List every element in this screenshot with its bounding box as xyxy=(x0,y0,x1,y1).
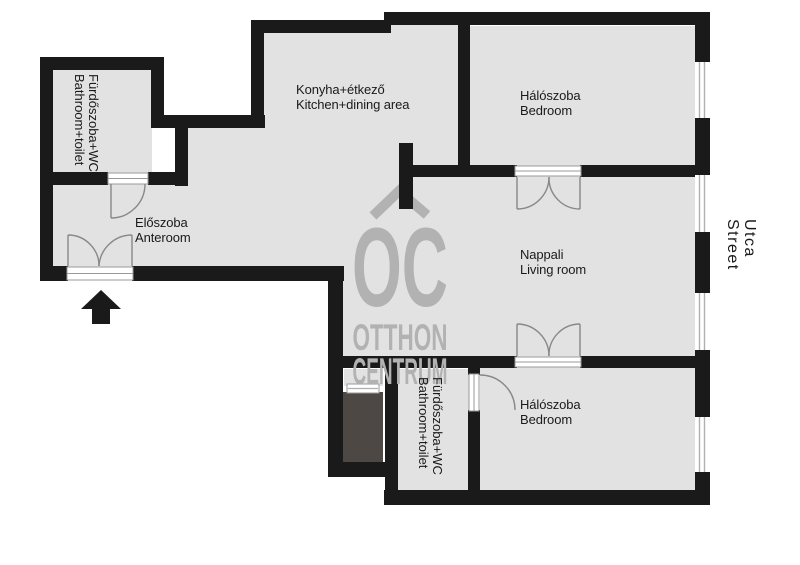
anteroom-floor xyxy=(52,184,344,267)
bathroom2-label-hu: Fürdőszoba+WC xyxy=(430,377,444,475)
bedroom1-label: Hálószoba Bedroom xyxy=(520,88,581,118)
street-window-2 xyxy=(695,175,710,232)
bedroom2-floor xyxy=(480,367,695,491)
street-window-4 xyxy=(695,417,710,472)
kitchen-label-hu: Konyha+étkező xyxy=(296,82,409,97)
bathroom1-label-hu: Fürdőszoba+WC xyxy=(86,74,100,172)
bedroom2-label-en: Bedroom xyxy=(520,412,581,427)
living-room-label: Nappali Living room xyxy=(520,247,586,277)
bathroom1-label: Fürdőszoba+WC Bathroom+toilet xyxy=(72,74,100,172)
street-window-1 xyxy=(695,62,710,118)
living-room-label-hu: Nappali xyxy=(520,247,586,262)
floor-plan-page: OC OTTHON CENTRUM Fürdőszoba+WC Bathroom… xyxy=(0,0,800,565)
kitchen-label-en: Kitchen+dining area xyxy=(296,97,409,112)
anteroom-label-hu: Előszoba xyxy=(135,215,191,230)
kitchen-label: Konyha+étkező Kitchen+dining area xyxy=(296,82,409,112)
anteroom-label: Előszoba Anteroom xyxy=(135,215,191,245)
bedroom1-floor xyxy=(470,26,695,166)
bedroom2-label: Hálószoba Bedroom xyxy=(520,397,581,427)
bathroom1-floor xyxy=(52,70,152,174)
bedroom1-threshold xyxy=(515,166,581,176)
street-label-en: Street xyxy=(724,219,741,271)
balcony-shaft xyxy=(343,392,383,462)
bedroom2-label-hu: Hálószoba xyxy=(520,397,581,412)
bathroom2-threshold xyxy=(469,374,479,411)
street-label: Utca Street xyxy=(724,219,758,271)
kitchen-living-wall-stub xyxy=(399,143,413,209)
otthon-centrum-watermark: OC OTTHON CENTRUM xyxy=(352,191,448,392)
street-label-hu: Utca xyxy=(741,219,758,271)
street-window-3 xyxy=(695,293,710,350)
bedroom1-label-hu: Hálószoba xyxy=(520,88,581,103)
bedroom1-label-en: Bedroom xyxy=(520,103,581,118)
living-room-label-en: Living room xyxy=(520,262,586,277)
anteroom-label-en: Anteroom xyxy=(135,230,191,245)
bedroom2-threshold xyxy=(515,357,581,367)
bathroom1-label-en: Bathroom+toilet xyxy=(72,74,86,172)
bathroom1-threshold xyxy=(108,173,148,184)
entrance-arrow-icon xyxy=(81,290,121,324)
entrance-threshold xyxy=(67,267,133,280)
bathroom2-label-en: Bathroom+toilet xyxy=(416,377,430,475)
watermark-monogram: OC xyxy=(352,205,448,330)
bathroom2-label: Fürdőszoba+WC Bathroom+toilet xyxy=(416,377,444,475)
